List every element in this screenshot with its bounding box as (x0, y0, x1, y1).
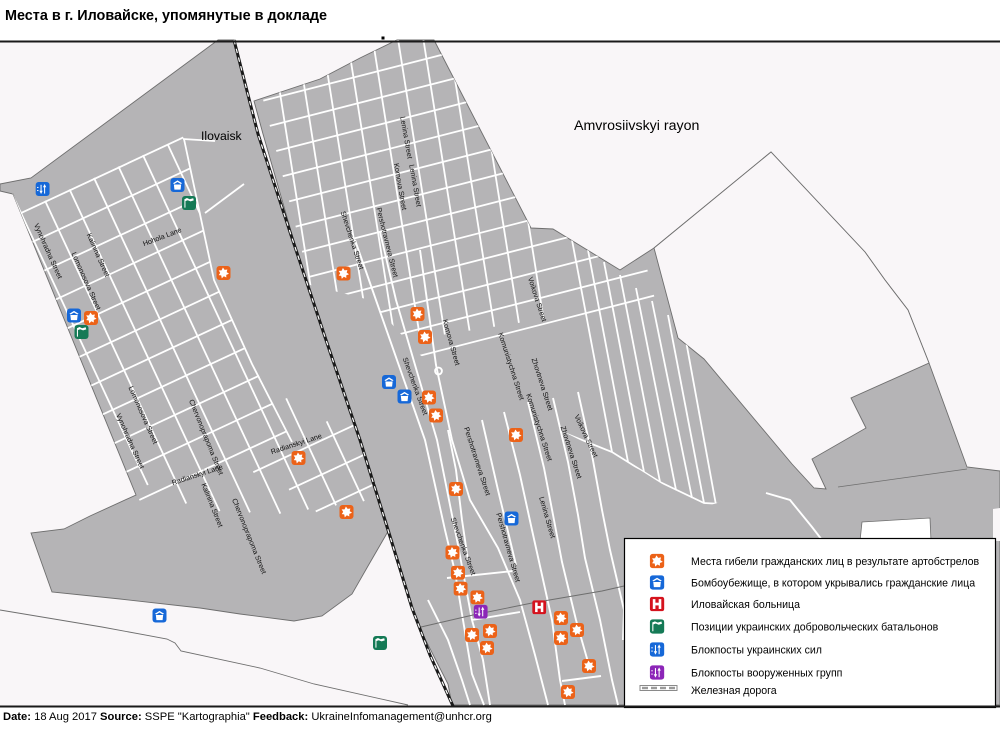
svg-text:Date: 18 Aug 2017 Source: SSP: Date: 18 Aug 2017 Source: SSPE "Kartogra… (3, 711, 492, 723)
svg-text:Бомбоубежище, в котором укрыва: Бомбоубежище, в котором укрывались гражд… (691, 578, 975, 590)
svg-text:Блокпосты украинских сил: Блокпосты украинских сил (691, 645, 822, 657)
svg-text:Места гибели гражданских лиц в: Места гибели гражданских лиц в результат… (691, 556, 980, 568)
svg-text:Иловайская больница: Иловайская больница (691, 599, 800, 611)
svg-text:Блокпосты вооруженных групп: Блокпосты вооруженных групп (691, 668, 842, 680)
svg-text:Ilovaisk: Ilovaisk (201, 129, 243, 143)
svg-text:Amvrosiivskyi rayon: Amvrosiivskyi rayon (574, 118, 699, 134)
svg-text:Железная дорога: Железная дорога (691, 685, 777, 697)
svg-text:Места в г. Иловайске, упомянут: Места в г. Иловайске, упомянутые в докла… (5, 8, 327, 24)
svg-text:Позиции украинских добровольче: Позиции украинских добровольческих батал… (691, 622, 939, 634)
